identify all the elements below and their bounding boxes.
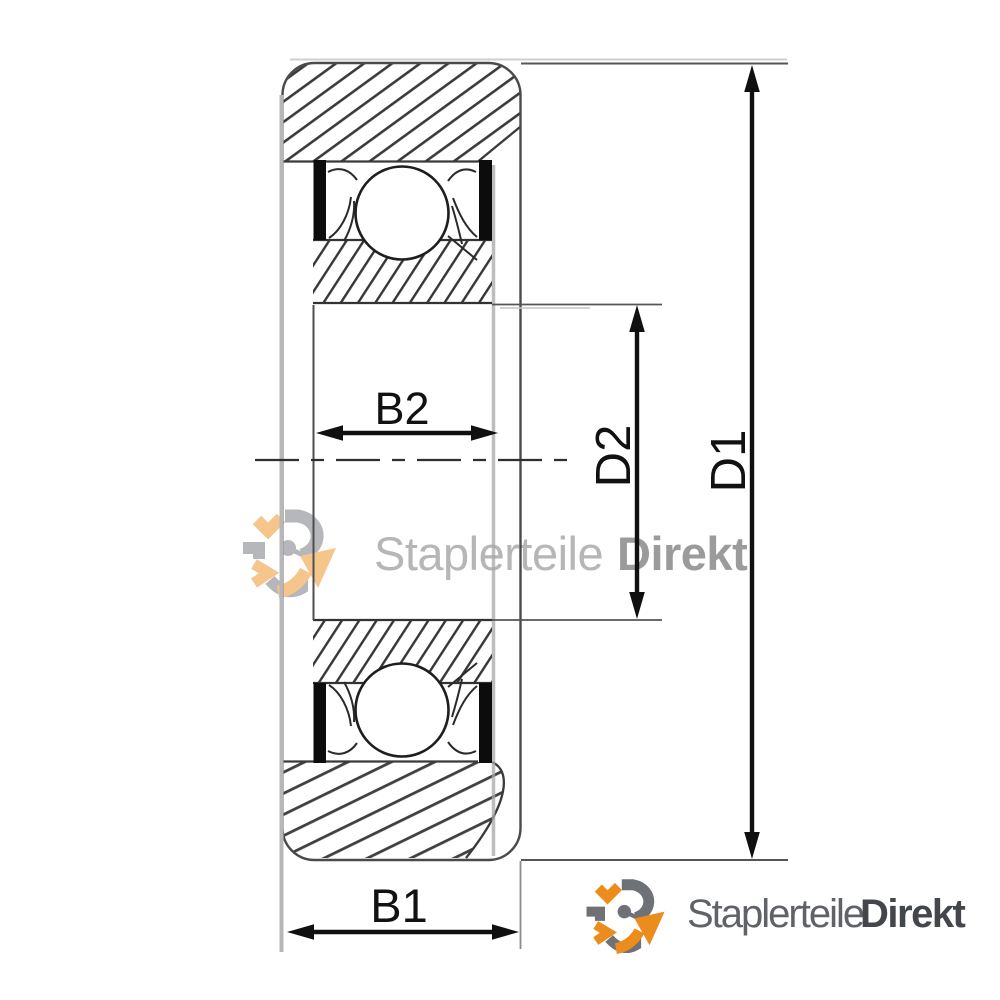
dimension-d1-label: D1 <box>702 430 756 493</box>
dimension-b2: B2 <box>316 383 498 441</box>
footer-brand-regular: Staplerteile <box>687 892 864 936</box>
footer-gear-icon <box>587 885 665 949</box>
ball-top <box>356 167 449 260</box>
seal-bottom-right <box>479 683 492 763</box>
dimension-d2-label: D2 <box>587 425 641 488</box>
seal-bottom-left <box>314 683 327 763</box>
bearing-bottom <box>313 620 492 763</box>
dimension-b1: B1 <box>287 879 519 940</box>
dimension-d1: D1 <box>702 65 760 859</box>
footer-brand-logo: Staplerteile Direkt <box>587 885 966 949</box>
dimension-b1-label: B1 <box>370 879 428 932</box>
wheel-cross-section <box>282 60 788 953</box>
center-watermark: Staplerteile Direkt <box>243 516 748 592</box>
bearing-roller-technical-drawing: Staplerteile Direkt <box>0 0 1000 1000</box>
drawing-canvas: Staplerteile Direkt <box>0 0 1000 1000</box>
outer-ring-top-section <box>283 63 521 161</box>
watermark-gear-icon <box>243 516 336 592</box>
ball-bottom <box>356 664 449 757</box>
seal-top-left <box>314 160 327 240</box>
dimension-b2-label: B2 <box>374 383 429 434</box>
seal-top-right <box>479 160 492 240</box>
bearing-top <box>313 160 492 303</box>
footer-brand-bold: Direkt <box>860 892 966 936</box>
watermark-brand-regular: Staplerteile <box>374 527 603 580</box>
outer-ring-bottom-section <box>283 762 504 858</box>
extension-lines <box>492 64 788 950</box>
